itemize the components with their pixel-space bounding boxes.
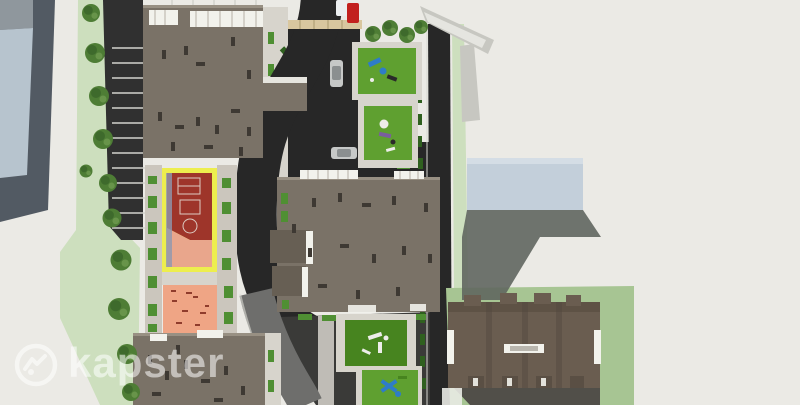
green-playground-2	[364, 106, 412, 160]
office-building-west	[0, 0, 55, 222]
green-playground-3	[345, 320, 407, 366]
court-side-strip-east	[217, 165, 237, 335]
apartment-building-south-east-pitched	[442, 293, 601, 405]
entrance-wing-upper	[270, 230, 313, 264]
green-playground-1	[358, 48, 416, 94]
playground-area-north	[352, 42, 422, 168]
court-step-strip	[162, 272, 217, 285]
roof-unit	[190, 11, 263, 27]
site-plan-render: kapster	[0, 0, 800, 405]
court-track-lane	[166, 173, 172, 267]
apartment-building-south-west	[133, 330, 281, 405]
court-shaded	[167, 173, 212, 240]
dormer-west	[447, 330, 454, 364]
plaza-walkway	[318, 316, 334, 405]
basketball-court-block	[145, 165, 237, 335]
apartment-building-central	[270, 161, 440, 321]
entrance-wing-lower	[272, 266, 308, 297]
silver-car-vertical	[330, 60, 343, 87]
dormer-east	[594, 330, 601, 364]
site-plan-svg	[0, 0, 800, 405]
silver-car-horizontal	[331, 147, 357, 159]
roof-unit	[149, 10, 178, 25]
